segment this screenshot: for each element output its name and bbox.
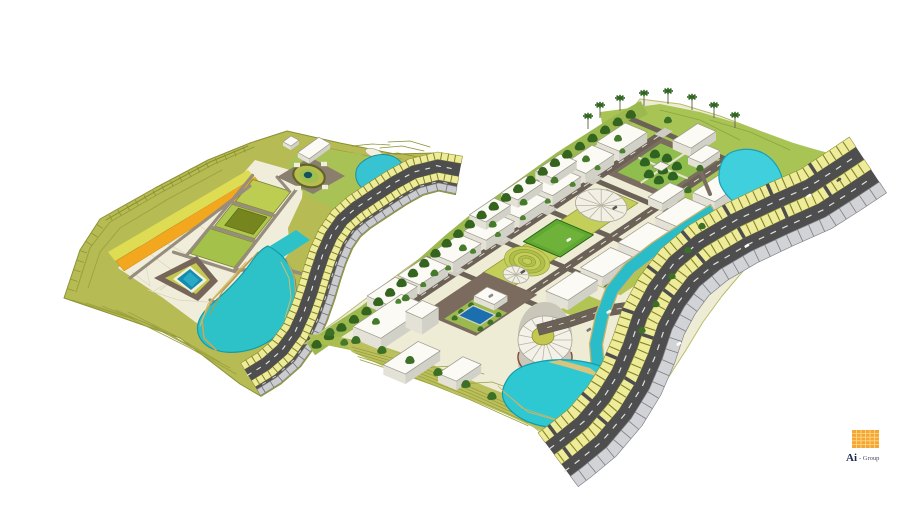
svg-text:Ai: Ai [846, 452, 857, 464]
svg-text:- Group: - Group [859, 455, 879, 462]
